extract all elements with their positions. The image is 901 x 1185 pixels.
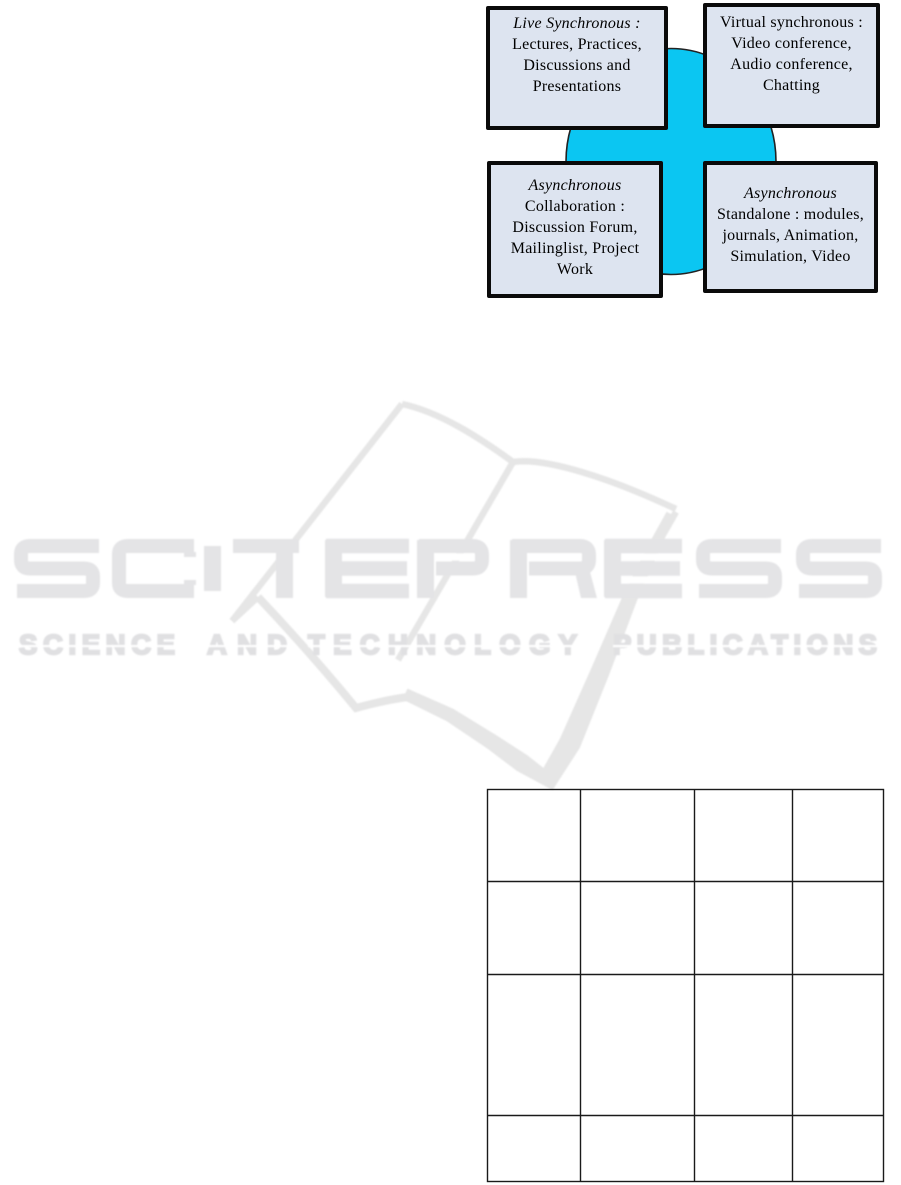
svg-text:PUBLICATIONS: PUBLICATIONS [613,629,877,660]
svg-text:AND: AND [207,629,287,660]
svg-text:TECHNOLOGY: TECHNOLOGY [308,629,577,660]
svg-text:SCIENCE: SCIENCE [19,629,175,660]
